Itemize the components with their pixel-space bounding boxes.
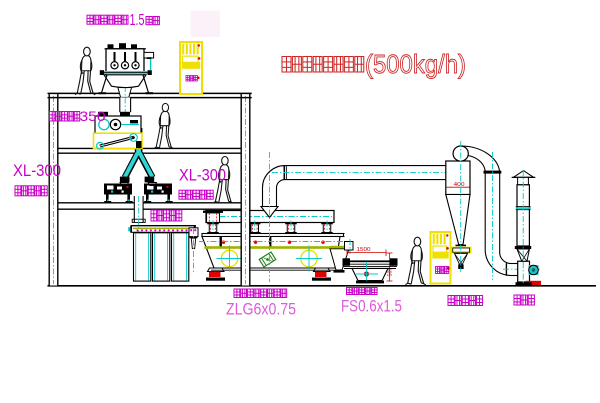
svg-text:350: 350 [80, 108, 106, 124]
svg-text:FS0.6x1.5: FS0.6x1.5 [341, 296, 402, 315]
svg-text:XL-300: XL-300 [13, 162, 61, 180]
svg-text:400: 400 [454, 182, 465, 188]
svg-text:(500kg/h): (500kg/h) [365, 49, 466, 79]
svg-text:1500: 1500 [357, 247, 371, 253]
svg-text:XL-300: XL-300 [179, 167, 226, 185]
svg-text:ZLG6x0.75: ZLG6x0.75 [226, 300, 296, 319]
svg-text:1.5: 1.5 [130, 12, 145, 29]
